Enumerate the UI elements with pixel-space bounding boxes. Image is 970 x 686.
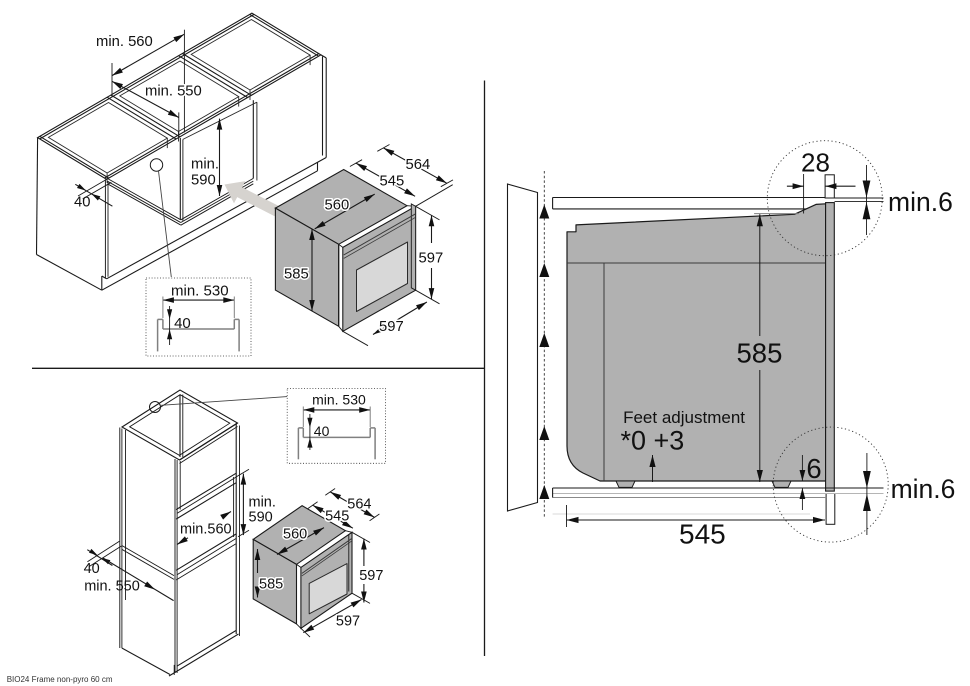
- svg-text:545: 545: [380, 174, 405, 190]
- svg-text:585: 585: [259, 577, 283, 593]
- svg-text:*0 +3: *0 +3: [621, 426, 685, 456]
- svg-text:min. 530: min. 530: [171, 283, 229, 300]
- svg-text:Feet adjustment: Feet adjustment: [623, 408, 745, 427]
- svg-text:560: 560: [283, 527, 307, 543]
- svg-text:min. 550: min. 550: [84, 579, 140, 595]
- svg-text:40: 40: [174, 315, 191, 332]
- svg-text:min.560: min.560: [180, 522, 232, 538]
- svg-text:min. 550: min. 550: [145, 84, 202, 100]
- svg-text:40: 40: [74, 195, 90, 211]
- svg-text:min. 530: min. 530: [312, 392, 366, 408]
- svg-text:590: 590: [249, 510, 273, 526]
- svg-text:40: 40: [84, 561, 100, 577]
- svg-text:min.: min.: [191, 157, 219, 173]
- svg-text:min. 560: min. 560: [96, 34, 153, 50]
- svg-text:min.6: min.6: [888, 187, 953, 217]
- svg-text:597: 597: [379, 319, 404, 335]
- svg-text:40: 40: [314, 423, 330, 439]
- svg-text:28: 28: [801, 148, 830, 178]
- svg-text:585: 585: [284, 267, 309, 283]
- svg-text:597: 597: [359, 568, 383, 584]
- svg-text:6: 6: [806, 453, 821, 484]
- svg-text:597: 597: [336, 614, 360, 630]
- svg-text:545: 545: [679, 519, 726, 550]
- svg-text:597: 597: [419, 251, 444, 267]
- svg-text:564: 564: [406, 157, 431, 173]
- svg-text:min.6: min.6: [891, 474, 956, 504]
- svg-text:560: 560: [325, 198, 350, 214]
- svg-text:BIO24 Frame non-pyro 60 cm: BIO24 Frame non-pyro 60 cm: [7, 675, 113, 684]
- svg-text:585: 585: [737, 338, 783, 369]
- svg-text:590: 590: [191, 173, 216, 189]
- svg-text:545: 545: [325, 509, 349, 525]
- svg-text:min.: min.: [249, 495, 276, 511]
- svg-text:564: 564: [347, 497, 371, 513]
